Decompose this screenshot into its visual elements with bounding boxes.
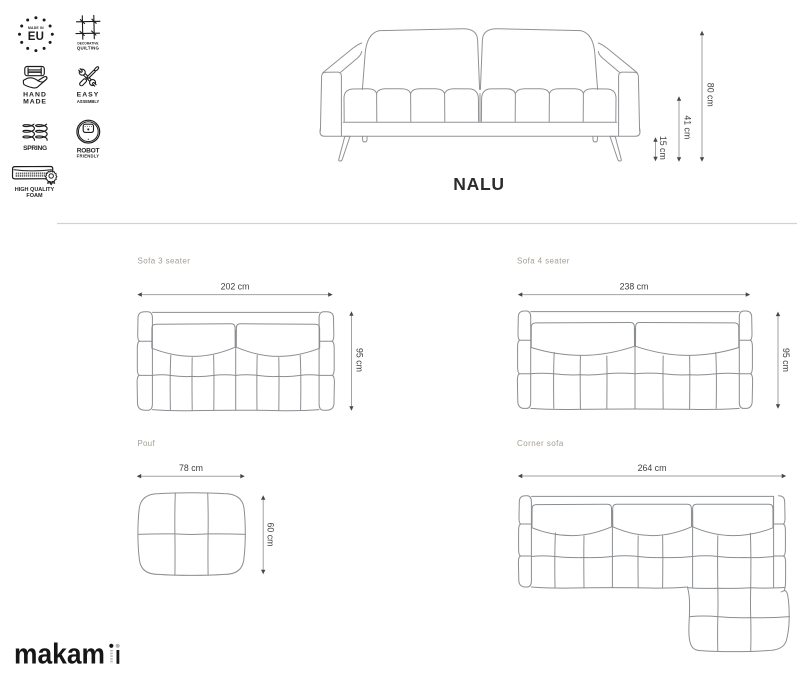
svg-text:EASY: EASY [77, 91, 100, 98]
svg-text:Sofa 4 seater: Sofa 4 seater [517, 257, 570, 266]
svg-text:Corner sofa: Corner sofa [517, 439, 564, 448]
svg-text:FRIENDLY: FRIENDLY [77, 154, 100, 159]
svg-text:80 cm: 80 cm [706, 83, 716, 107]
svg-text:78 cm: 78 cm [179, 463, 203, 473]
svg-text:202 cm: 202 cm [221, 282, 250, 292]
svg-text:15 cm: 15 cm [658, 136, 668, 160]
svg-text:95 cm: 95 cm [354, 348, 364, 372]
svg-text:makam: makam [14, 639, 105, 671]
svg-text:238 cm: 238 cm [620, 282, 649, 292]
svg-text:60 cm: 60 cm [266, 523, 276, 547]
svg-text:264 cm: 264 cm [638, 463, 667, 473]
svg-text:QUILTING: QUILTING [77, 46, 100, 51]
svg-text:MADE IN: MADE IN [28, 26, 44, 30]
svg-text:MADE: MADE [23, 99, 47, 106]
svg-text:NALU: NALU [453, 174, 504, 194]
svg-text:41 cm: 41 cm [682, 115, 692, 139]
svg-text:FOAM: FOAM [26, 193, 43, 199]
svg-text:ASSEMBLY: ASSEMBLY [77, 99, 100, 104]
svg-text:SPRING: SPRING [23, 145, 47, 152]
svg-text:HIGH QUALITY: HIGH QUALITY [15, 187, 55, 193]
svg-text:Sofa 3 seater: Sofa 3 seater [138, 257, 191, 266]
svg-text:HAND: HAND [23, 91, 47, 98]
svg-text:EU: EU [28, 31, 44, 43]
svg-text:Pouf: Pouf [138, 439, 156, 448]
svg-text:95 cm: 95 cm [781, 348, 791, 372]
